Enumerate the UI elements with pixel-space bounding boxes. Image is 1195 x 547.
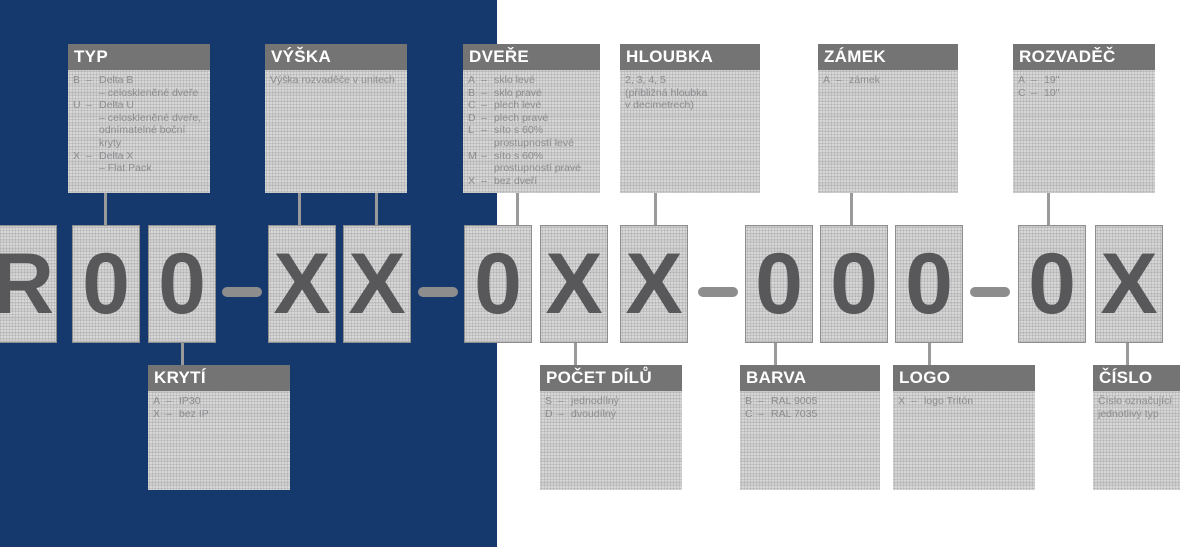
item-code: S — [545, 395, 558, 408]
item-text: RAL 9005 — [771, 395, 876, 408]
callout-logo-body: X–logo Tritón — [893, 391, 1035, 490]
item-separator: – — [166, 408, 179, 421]
callout-hloubka-body: 2, 3, 4, 5 (přibližná hloubka v decimetr… — [620, 70, 760, 193]
item-text: 19" — [1044, 74, 1151, 87]
callout-kryti-title: KRYTÍ — [148, 365, 290, 391]
item-text: Delta B – celoskleněné dveře — [99, 74, 206, 99]
item-code: D — [545, 408, 558, 421]
item-separator: – — [481, 74, 494, 87]
callout-vyska: VÝŠKA Výška rozvaděče v unitech — [265, 44, 407, 193]
item-separator: – — [836, 74, 849, 87]
item-separator: – — [1031, 74, 1044, 87]
connector-cislo — [1126, 343, 1129, 365]
code-box-2: 0 — [72, 225, 140, 343]
code-box-12: 0 — [1018, 225, 1086, 343]
legend-item: X–bez IP — [153, 408, 286, 421]
order-code-diagram: TYP B–Delta B – celoskleněné dveře U–Del… — [0, 0, 1195, 547]
item-separator: – — [86, 99, 99, 149]
item-code: X — [898, 395, 911, 408]
item-text: Delta U – celoskleněné dveře, odnímateln… — [99, 99, 206, 149]
callout-logo: LOGO X–logo Tritón — [893, 365, 1035, 490]
code-box-5: X — [343, 225, 411, 343]
callout-kryti-body: A–IP30 X–bez IP — [148, 391, 290, 490]
legend-item: M–síto s 60% prostupností pravé — [468, 150, 596, 175]
item-separator: – — [86, 150, 99, 175]
code-box-11: 0 — [895, 225, 963, 343]
item-code: A — [823, 74, 836, 87]
callout-dvere-body: A–sklo levé B–sklo pravé C–plech levé D–… — [463, 70, 600, 193]
code-separator — [222, 287, 262, 297]
callout-barva-title: BARVA — [740, 365, 880, 391]
code-box-8: X — [620, 225, 688, 343]
item-separator: – — [1031, 87, 1044, 100]
item-separator: – — [758, 395, 771, 408]
item-text: 10" — [1044, 87, 1151, 100]
item-code: A — [153, 395, 166, 408]
code-separator — [418, 287, 458, 297]
callout-logo-title: LOGO — [893, 365, 1035, 391]
connector-pocet-dilu — [574, 343, 577, 365]
connector-dvere — [516, 193, 519, 225]
legend-item: A–19" — [1018, 74, 1151, 87]
item-separator: – — [481, 112, 494, 125]
item-separator: – — [481, 175, 494, 188]
callout-hloubka: HLOUBKA 2, 3, 4, 5 (přibližná hloubka v … — [620, 44, 760, 193]
item-code: A — [1018, 74, 1031, 87]
legend-note: Číslo označující jednotlivý typ — [1098, 395, 1176, 420]
callout-vyska-body: Výška rozvaděče v unitech — [265, 70, 407, 193]
connector-barva — [774, 343, 777, 365]
legend-item: X–Delta X – Flat Pack — [73, 150, 206, 175]
item-separator: – — [481, 124, 494, 149]
item-separator: – — [558, 395, 571, 408]
legend-item: L–síto s 60% prostupností levé — [468, 124, 596, 149]
legend-item: D–dvoudílný — [545, 408, 678, 421]
item-code: D — [468, 112, 481, 125]
item-code: B — [745, 395, 758, 408]
item-code: X — [468, 175, 481, 188]
item-code: A — [468, 74, 481, 87]
code-box-10: 0 — [820, 225, 888, 343]
legend-item: U–Delta U – celoskleněné dveře, odnímate… — [73, 99, 206, 149]
item-code: B — [73, 74, 86, 99]
callout-typ-body: B–Delta B – celoskleněné dveře U–Delta U… — [68, 70, 210, 193]
item-code: L — [468, 124, 481, 149]
legend-item: S–jednodílný — [545, 395, 678, 408]
item-text: dvoudílný — [571, 408, 678, 421]
item-code: B — [468, 87, 481, 100]
item-separator: – — [86, 74, 99, 99]
legend-item: A–zámek — [823, 74, 954, 87]
item-text: RAL 7035 — [771, 408, 876, 421]
code-box-13: X — [1095, 225, 1163, 343]
legend-item: C–10" — [1018, 87, 1151, 100]
item-separator: – — [558, 408, 571, 421]
callout-vyska-title: VÝŠKA — [265, 44, 407, 70]
item-code: C — [745, 408, 758, 421]
item-code: X — [153, 408, 166, 421]
item-code: C — [1018, 87, 1031, 100]
item-text: jednodílný — [571, 395, 678, 408]
callout-pocet-dilu-body: S–jednodílný D–dvoudílný — [540, 391, 682, 490]
item-text: bez dveří — [494, 175, 596, 188]
code-box-1: R — [0, 225, 57, 343]
item-text: sklo pravé — [494, 87, 596, 100]
connector-zamek — [850, 193, 853, 225]
callout-dvere: DVEŘE A–sklo levé B–sklo pravé C–plech l… — [463, 44, 600, 193]
connector-rozvadec — [1047, 193, 1050, 225]
item-text: sklo levé — [494, 74, 596, 87]
legend-note: 2, 3, 4, 5 (přibližná hloubka v decimetr… — [625, 74, 756, 112]
connector-typ — [104, 193, 107, 225]
callout-zamek: ZÁMEK A–zámek — [818, 44, 958, 193]
callout-typ: TYP B–Delta B – celoskleněné dveře U–Del… — [68, 44, 210, 193]
item-text: síto s 60% prostupností levé — [494, 124, 596, 149]
callout-kryti: KRYTÍ A–IP30 X–bez IP — [148, 365, 290, 490]
callout-cislo: ČÍSLO Číslo označující jednotlivý typ — [1093, 365, 1180, 490]
item-text: IP30 — [179, 395, 286, 408]
callout-rozvadec-body: A–19" C–10" — [1013, 70, 1155, 193]
item-separator: – — [166, 395, 179, 408]
callout-rozvadec-title: ROZVADĚČ — [1013, 44, 1155, 70]
code-box-4: X — [268, 225, 336, 343]
callout-zamek-body: A–zámek — [818, 70, 958, 193]
connector-logo — [928, 343, 931, 365]
connector-vyska-1 — [298, 193, 301, 225]
callout-dvere-title: DVEŘE — [463, 44, 600, 70]
code-box-3: 0 — [148, 225, 216, 343]
item-separator: – — [481, 99, 494, 112]
code-separator — [698, 287, 738, 297]
code-box-6: 0 — [464, 225, 532, 343]
callout-rozvadec: ROZVADĚČ A–19" C–10" — [1013, 44, 1155, 193]
callout-cislo-body: Číslo označující jednotlivý typ — [1093, 391, 1180, 490]
connector-hloubka — [654, 193, 657, 225]
item-code: X — [73, 150, 86, 175]
legend-item: C–plech levé — [468, 99, 596, 112]
legend-item: D–plech pravé — [468, 112, 596, 125]
connector-vyska-2 — [375, 193, 378, 225]
item-text: bez IP — [179, 408, 286, 421]
callout-pocet-dilu-title: POČET DÍLŮ — [540, 365, 682, 391]
item-text: síto s 60% prostupností pravé — [494, 150, 596, 175]
callout-hloubka-title: HLOUBKA — [620, 44, 760, 70]
code-box-7: X — [540, 225, 608, 343]
code-separator — [970, 287, 1010, 297]
item-text: plech levé — [494, 99, 596, 112]
item-separator: – — [911, 395, 924, 408]
legend-item: B–sklo pravé — [468, 87, 596, 100]
item-text: plech pravé — [494, 112, 596, 125]
callout-pocet-dilu: POČET DÍLŮ S–jednodílný D–dvoudílný — [540, 365, 682, 490]
legend-item: A–IP30 — [153, 395, 286, 408]
legend-item: A–sklo levé — [468, 74, 596, 87]
callout-barva: BARVA B–RAL 9005 C–RAL 7035 — [740, 365, 880, 490]
legend-note: Výška rozvaděče v unitech — [270, 74, 403, 87]
legend-item: C–RAL 7035 — [745, 408, 876, 421]
item-text: zámek — [849, 74, 954, 87]
item-separator: – — [758, 408, 771, 421]
code-box-9: 0 — [745, 225, 813, 343]
legend-item: B–RAL 9005 — [745, 395, 876, 408]
legend-item: X–logo Tritón — [898, 395, 1031, 408]
item-separator: – — [481, 87, 494, 100]
legend-item: B–Delta B – celoskleněné dveře — [73, 74, 206, 99]
item-code: M — [468, 150, 481, 175]
callout-barva-body: B–RAL 9005 C–RAL 7035 — [740, 391, 880, 490]
item-text: Delta X – Flat Pack — [99, 150, 206, 175]
item-text: logo Tritón — [924, 395, 1031, 408]
item-code: U — [73, 99, 86, 149]
item-code: C — [468, 99, 481, 112]
item-separator: – — [481, 150, 494, 175]
connector-kryti — [181, 343, 184, 365]
callout-typ-title: TYP — [68, 44, 210, 70]
legend-item: X–bez dveří — [468, 175, 596, 188]
callout-cislo-title: ČÍSLO — [1093, 365, 1180, 391]
callout-zamek-title: ZÁMEK — [818, 44, 958, 70]
